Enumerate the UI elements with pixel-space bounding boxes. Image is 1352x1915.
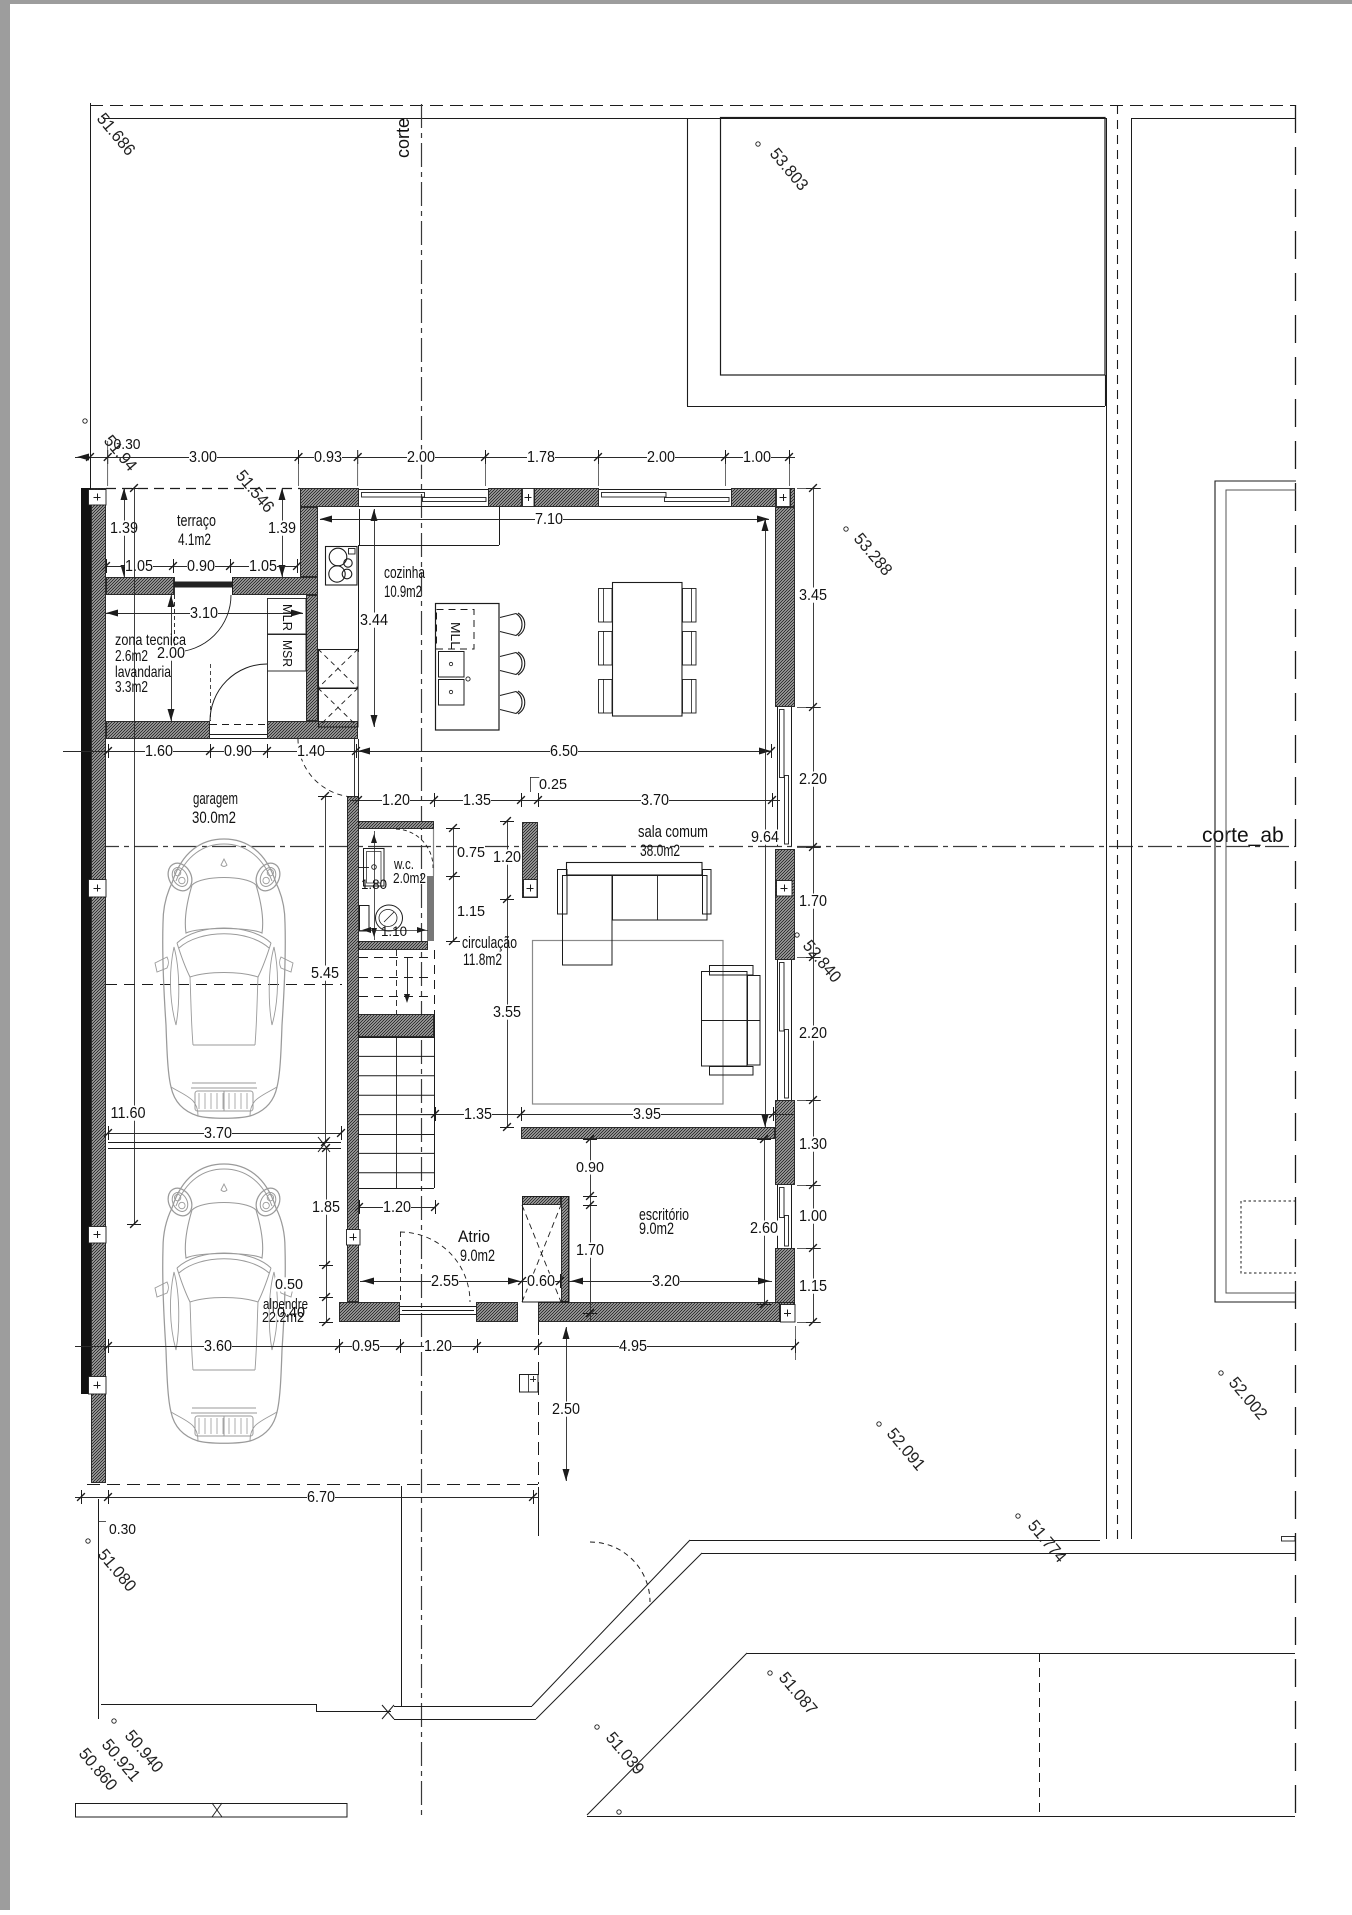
svg-text:3.70: 3.70 <box>641 792 669 809</box>
svg-text:3.00: 3.00 <box>189 449 217 466</box>
svg-text:1.00: 1.00 <box>799 1208 827 1225</box>
svg-text:4.95: 4.95 <box>619 1338 647 1355</box>
svg-text:3.95: 3.95 <box>633 1106 661 1123</box>
svg-text:2.6m2: 2.6m2 <box>115 648 148 665</box>
svg-text:cozinha: cozinha <box>384 563 425 582</box>
svg-text:corte: corte <box>393 118 413 158</box>
svg-text:1.85: 1.85 <box>312 1199 340 1216</box>
svg-text:1.30: 1.30 <box>799 1136 827 1153</box>
svg-text:1.15: 1.15 <box>799 1278 827 1295</box>
svg-text:38.0m2: 38.0m2 <box>640 841 680 860</box>
svg-text:9.0m2: 9.0m2 <box>639 1219 674 1238</box>
svg-text:terraço: terraço <box>177 511 216 530</box>
svg-text:2.60: 2.60 <box>750 1220 778 1237</box>
svg-text:0.75: 0.75 <box>457 844 485 861</box>
svg-text:1.60: 1.60 <box>145 743 173 760</box>
svg-text:3.60: 3.60 <box>204 1338 232 1355</box>
svg-text:0.95: 0.95 <box>352 1338 380 1355</box>
svg-text:0.50: 0.50 <box>275 1276 303 1293</box>
svg-text:2.00: 2.00 <box>407 449 435 466</box>
svg-text:1.10: 1.10 <box>381 923 407 939</box>
svg-text:3.3m2: 3.3m2 <box>115 679 148 696</box>
svg-text:1.05: 1.05 <box>249 558 277 575</box>
svg-text:0.90: 0.90 <box>187 558 215 575</box>
svg-text:1.00: 1.00 <box>743 449 771 466</box>
svg-text:3.55: 3.55 <box>493 1004 521 1021</box>
svg-text:1.35: 1.35 <box>464 1106 492 1123</box>
svg-text:1.80: 1.80 <box>361 876 387 892</box>
svg-text:1.15: 1.15 <box>457 903 485 920</box>
svg-text:2.50: 2.50 <box>552 1401 580 1418</box>
svg-text:0.90: 0.90 <box>224 743 252 760</box>
svg-text:30.0m2: 30.0m2 <box>192 808 236 827</box>
svg-text:MSR: MSR <box>280 640 295 667</box>
svg-text:1.78: 1.78 <box>527 449 555 466</box>
svg-text:2.20: 2.20 <box>799 1025 827 1042</box>
svg-text:1.35: 1.35 <box>463 792 491 809</box>
svg-text:0.30: 0.30 <box>109 1521 136 1538</box>
svg-text:0.25: 0.25 <box>539 776 567 793</box>
svg-text:1.20: 1.20 <box>382 792 410 809</box>
svg-text:6.50: 6.50 <box>550 743 578 760</box>
svg-text:2.20: 2.20 <box>799 771 827 788</box>
svg-text:sala comum: sala comum <box>638 822 708 841</box>
svg-text:3.45: 3.45 <box>799 587 827 604</box>
svg-text:2.55: 2.55 <box>431 1273 459 1290</box>
svg-text:3.44: 3.44 <box>360 612 388 629</box>
svg-text:2.00: 2.00 <box>647 449 675 466</box>
svg-text:0.90: 0.90 <box>576 1159 604 1176</box>
svg-text:MLL: MLL <box>448 622 463 649</box>
svg-text:0.93: 0.93 <box>314 449 342 466</box>
svg-text:1.40: 1.40 <box>297 743 325 760</box>
svg-text:11.60: 11.60 <box>111 1105 146 1122</box>
svg-text:5.45: 5.45 <box>311 965 339 982</box>
svg-text:22.2m2: 22.2m2 <box>262 1309 304 1326</box>
svg-text:6.70: 6.70 <box>307 1489 335 1506</box>
svg-text:7.10: 7.10 <box>535 511 563 528</box>
svg-text:1.39: 1.39 <box>110 520 138 537</box>
svg-text:9.0m2: 9.0m2 <box>460 1246 495 1265</box>
svg-text:Atrio: Atrio <box>458 1227 490 1246</box>
svg-text:1.05: 1.05 <box>125 558 153 575</box>
svg-text:1.20: 1.20 <box>424 1338 452 1355</box>
svg-text:3.10: 3.10 <box>190 605 218 622</box>
svg-text:garagem: garagem <box>193 789 238 808</box>
svg-text:zona tecnica: zona tecnica <box>115 632 186 649</box>
svg-text:1.70: 1.70 <box>799 893 827 910</box>
svg-text:11.8m2: 11.8m2 <box>463 950 502 969</box>
svg-text:MLR: MLR <box>280 604 295 631</box>
svg-text:corte_ab: corte_ab <box>1202 824 1284 847</box>
svg-text:2.0m2: 2.0m2 <box>393 870 426 887</box>
svg-text:1.20: 1.20 <box>493 849 521 866</box>
svg-text:0.60: 0.60 <box>527 1273 555 1290</box>
svg-text:10.9m2: 10.9m2 <box>384 582 422 601</box>
svg-text:9.64: 9.64 <box>751 829 779 846</box>
svg-text:1.70: 1.70 <box>576 1242 604 1259</box>
svg-text:1.39: 1.39 <box>268 520 296 537</box>
svg-text:1.20: 1.20 <box>383 1199 411 1216</box>
svg-text:3.70: 3.70 <box>204 1125 232 1142</box>
svg-text:4.1m2: 4.1m2 <box>178 530 211 549</box>
svg-text:3.20: 3.20 <box>652 1273 680 1290</box>
